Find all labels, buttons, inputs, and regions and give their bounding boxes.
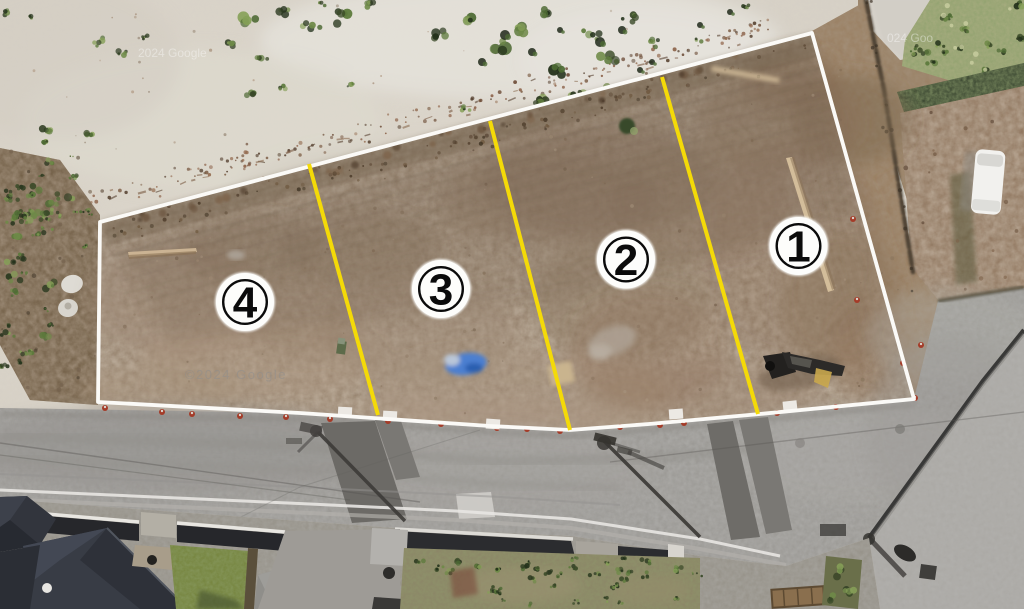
svg-text:©2024 Google: ©2024 Google (185, 367, 287, 382)
svg-text:4: 4 (233, 279, 258, 328)
svg-text:024 Goo: 024 Goo (887, 31, 933, 45)
svg-text:2: 2 (614, 236, 638, 285)
svg-text:3: 3 (429, 266, 453, 315)
svg-text:2024 Google: 2024 Google (138, 46, 207, 60)
svg-text:1: 1 (786, 223, 810, 272)
